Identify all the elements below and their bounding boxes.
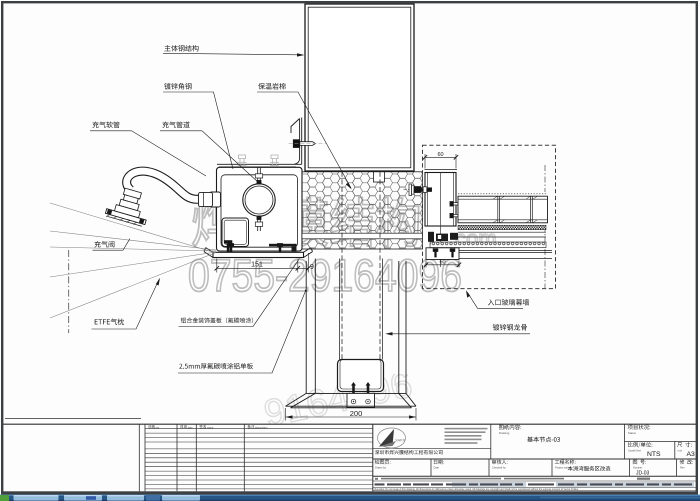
svg-text:200: 200 bbox=[350, 409, 363, 418]
svg-text:60: 60 bbox=[439, 259, 445, 265]
svg-text:Checked by: Checked by bbox=[492, 466, 506, 470]
svg-text:description: description bbox=[255, 425, 268, 429]
svg-text:Status: Status bbox=[628, 431, 637, 435]
svg-text:9: 9 bbox=[310, 264, 314, 271]
svg-text:date: date bbox=[188, 425, 194, 429]
svg-text:A3: A3 bbox=[687, 451, 696, 458]
svg-text:NTS: NTS bbox=[647, 451, 661, 458]
svg-text:60: 60 bbox=[437, 152, 443, 158]
svg-text:Scale/Unit: Scale/Unit bbox=[628, 449, 641, 453]
svg-text:Drawn by: Drawn by bbox=[375, 466, 387, 470]
svg-text:name: name bbox=[207, 426, 214, 429]
svg-text:Number: Number bbox=[633, 466, 642, 470]
svg-text:Rev: Rev bbox=[680, 466, 685, 470]
svg-text:Drawing: Drawing bbox=[499, 431, 510, 435]
svg-text:Date: Date bbox=[434, 466, 440, 470]
svg-text:151: 151 bbox=[251, 261, 263, 268]
svg-text:YHFX: YHFX bbox=[395, 439, 406, 443]
svg-text:mm: mm bbox=[678, 449, 683, 453]
svg-text:Project name: Project name bbox=[555, 466, 571, 470]
svg-text:JD-03: JD-03 bbox=[636, 471, 650, 477]
